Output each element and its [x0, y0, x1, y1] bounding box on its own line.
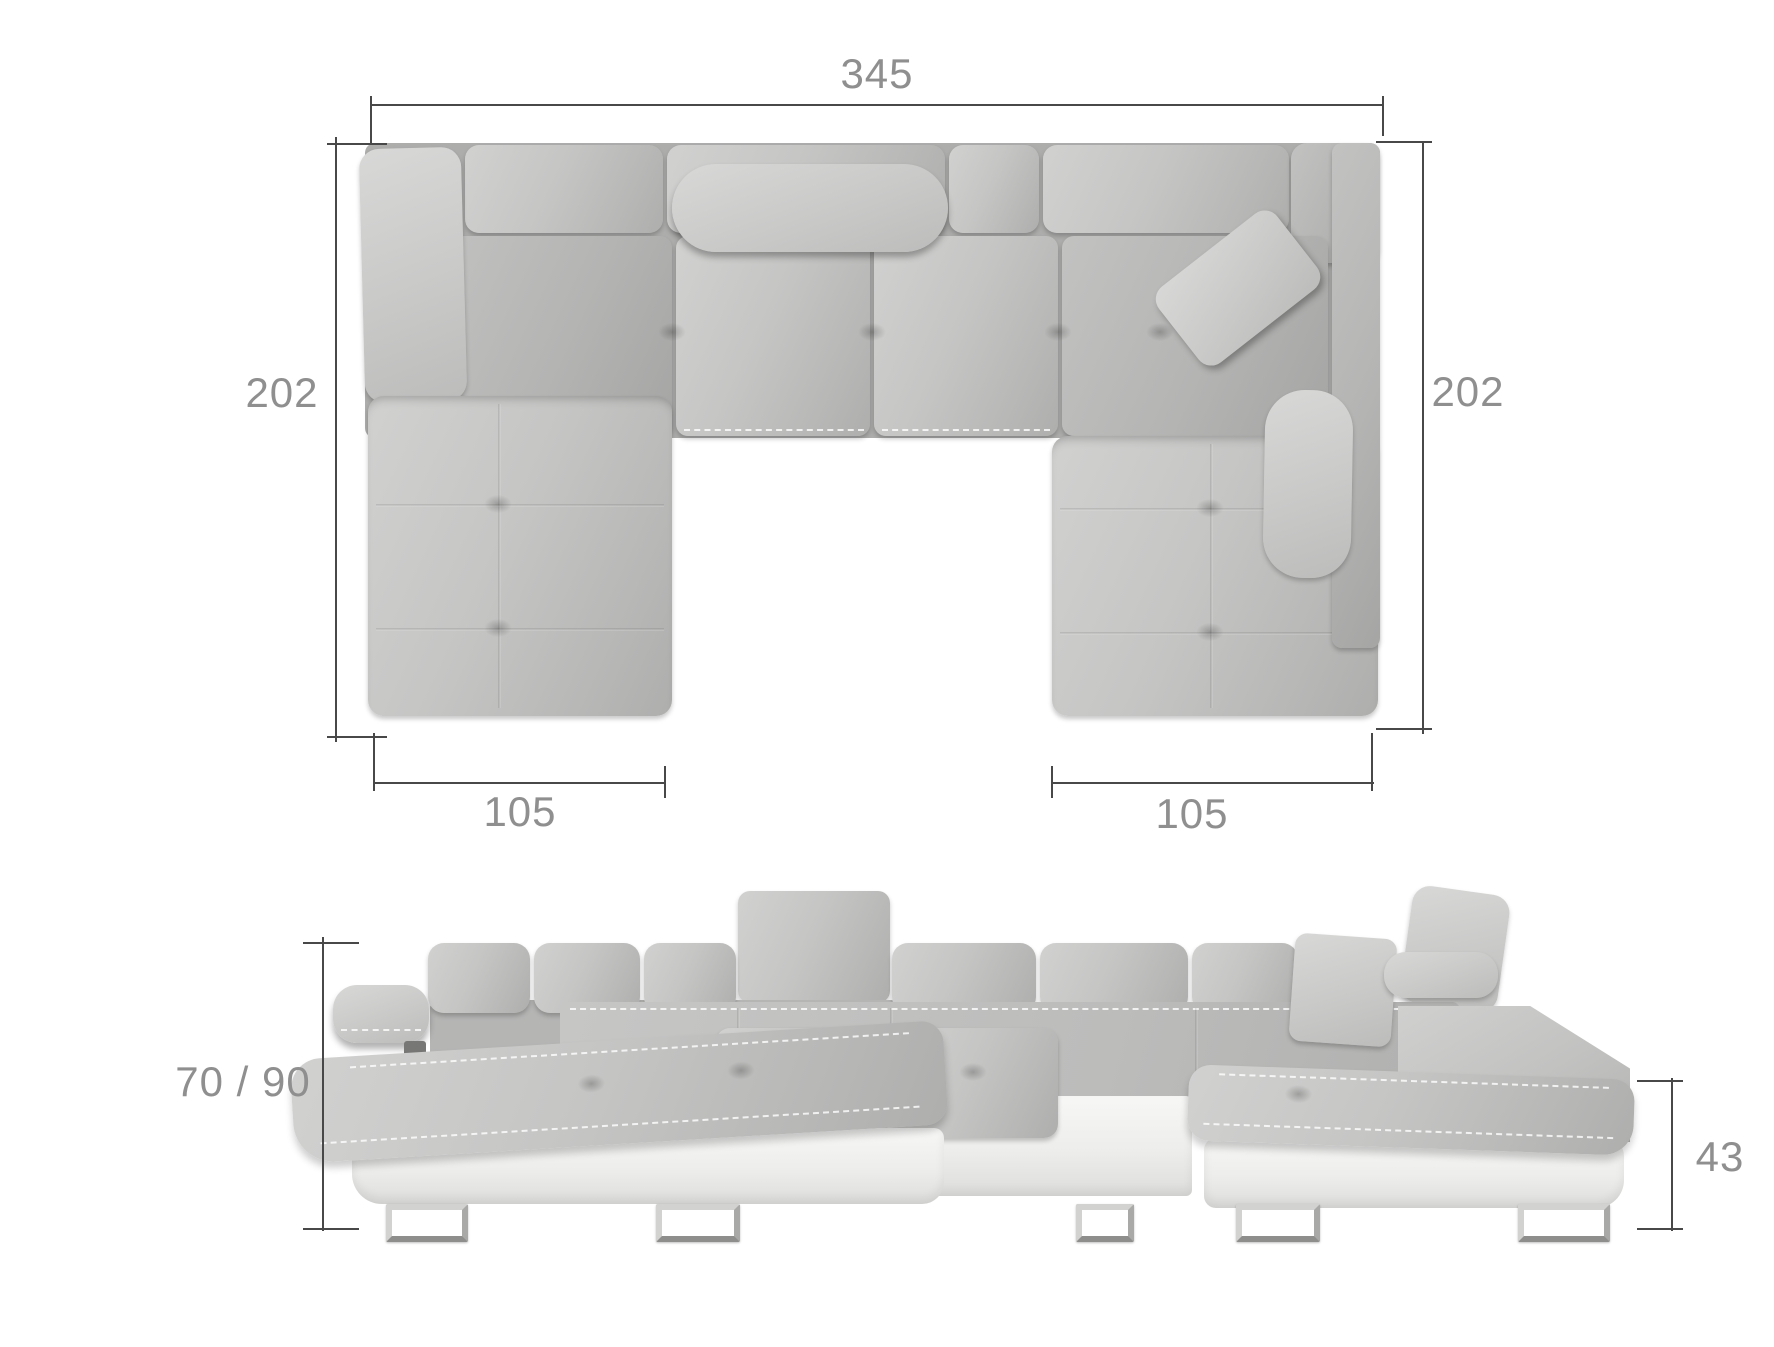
- front-view-roll-pillow: [1384, 952, 1498, 998]
- chrome-leg: [1518, 1204, 1610, 1242]
- chaise-seam: [376, 628, 664, 631]
- tuft-dimple: [576, 1073, 607, 1095]
- dimension-line-left-chaise-width: [374, 782, 666, 784]
- tuft-dimple: [1145, 322, 1175, 342]
- dimension-tick: [327, 143, 387, 145]
- dimension-line-seat-height: [1671, 1078, 1673, 1231]
- front-view-square-pillow: [1288, 933, 1397, 1048]
- chrome-leg: [1076, 1204, 1134, 1242]
- front-view-armrest-pad: [333, 985, 429, 1043]
- armrest-pad-stitching: [341, 1029, 421, 1031]
- chrome-leg: [656, 1204, 740, 1242]
- dimension-tick: [1637, 1228, 1683, 1230]
- tuft-dimple: [1195, 498, 1225, 518]
- dimension-tick: [303, 1228, 359, 1230]
- tuft-dimple: [657, 322, 687, 342]
- tuft-dimple: [1043, 322, 1073, 342]
- top-view-headrest-1: [465, 145, 663, 233]
- front-view-right-chaise-cushion: [1187, 1064, 1635, 1156]
- dimension-label-front-height: 70 / 90: [120, 1056, 366, 1108]
- top-view-seat-stitching-1: [684, 429, 864, 431]
- dimension-label-seat-height: 43: [1680, 1131, 1760, 1183]
- chaise-seam: [1210, 444, 1213, 708]
- dimension-label-left-chaise-width: 105: [450, 786, 590, 838]
- top-view-seat-stitching-2: [882, 429, 1050, 431]
- top-view-seat-middle-2: [874, 236, 1058, 436]
- tuft-dimple: [1283, 1084, 1314, 1105]
- tuft-dimple: [483, 618, 513, 638]
- dimension-label-right-chaise-width: 105: [1122, 788, 1262, 840]
- dimension-tick: [1637, 1080, 1683, 1082]
- top-view-left-chaise: [368, 396, 672, 716]
- chaise-stitching: [1203, 1123, 1613, 1139]
- dimension-line-right-chaise-width: [1052, 782, 1374, 784]
- tuft-dimple: [483, 494, 513, 514]
- dimension-extension: [664, 766, 666, 798]
- front-view-center-headrest: [738, 891, 890, 1003]
- tuft-dimple: [857, 322, 887, 342]
- chrome-leg: [1236, 1204, 1320, 1242]
- dimension-extension: [370, 96, 372, 144]
- top-view-headrest-3: [949, 145, 1039, 233]
- top-view-seat-middle-1: [676, 236, 870, 436]
- product-dimension-diagram: { "dimensions": { "top_width": "345", "l…: [0, 0, 1774, 1347]
- tuft-dimple: [725, 1060, 756, 1082]
- dimension-tick: [1376, 728, 1432, 730]
- top-view-right-armrest-cushion: [1262, 389, 1353, 579]
- dimension-line-total-width: [371, 104, 1383, 106]
- dimension-extension: [373, 733, 375, 791]
- top-view-right-armrest: [1332, 143, 1380, 648]
- dimension-tick: [1376, 141, 1432, 143]
- dimension-tick: [327, 736, 387, 738]
- tuft-dimple: [1195, 622, 1225, 642]
- dimension-extension: [1051, 766, 1053, 798]
- dimension-label-left-depth: 202: [222, 367, 342, 419]
- dimension-tick: [303, 942, 359, 944]
- dimension-label-total-width: 345: [797, 48, 957, 100]
- top-view-left-armrest: [359, 147, 468, 404]
- dimension-line-right-depth: [1422, 141, 1424, 734]
- chaise-seam: [498, 404, 501, 708]
- chaise-seam: [376, 504, 664, 507]
- dimension-label-right-depth: 202: [1408, 366, 1528, 418]
- dimension-extension: [1382, 96, 1384, 136]
- chrome-leg: [386, 1204, 468, 1242]
- tuft-dimple: [958, 1062, 988, 1082]
- top-view-roll-pillow: [672, 164, 948, 252]
- dimension-line-left-depth: [335, 137, 337, 742]
- dimension-extension: [1371, 733, 1373, 791]
- front-view-headrest: [428, 943, 530, 1013]
